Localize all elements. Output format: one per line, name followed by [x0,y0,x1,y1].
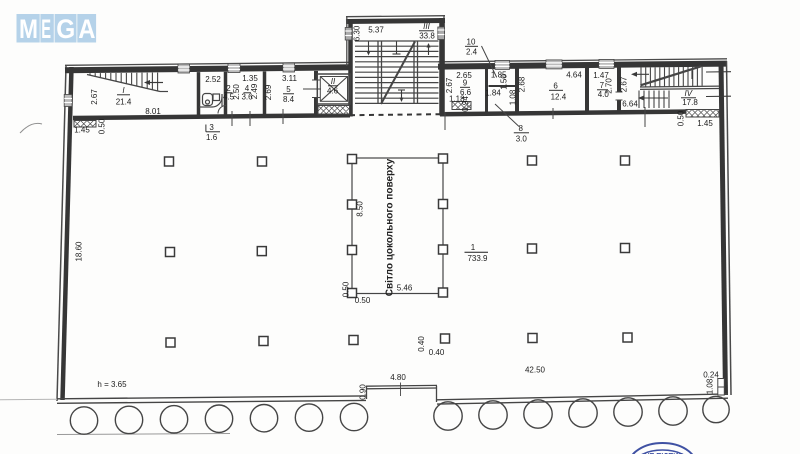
svg-text:2.68: 2.68 [518,76,527,92]
svg-text:II: II [331,77,336,86]
svg-text:1.45: 1.45 [697,119,713,128]
svg-text:5.37: 5.37 [368,26,384,35]
svg-text:0.50: 0.50 [342,281,351,297]
svg-text:6: 6 [553,82,558,91]
svg-text:3: 3 [209,123,214,132]
svg-text:2.69: 2.69 [264,84,273,100]
svg-text:5: 5 [286,85,291,94]
svg-text:3.11: 3.11 [282,74,298,83]
svg-text:3.0: 3.0 [516,135,528,144]
svg-text:0.94: 0.94 [461,96,470,112]
svg-text:9: 9 [463,79,468,88]
svg-text:Світло цокольного поверху: Світло цокольного поверху [385,158,396,296]
svg-text:G: G [56,14,75,44]
svg-text:18.60: 18.60 [75,241,84,262]
svg-text:IV: IV [685,89,693,98]
svg-text:0.40: 0.40 [429,348,445,357]
svg-text:0.90: 0.90 [359,384,368,400]
svg-text:1.08: 1.08 [509,89,518,105]
svg-text:4.80: 4.80 [390,373,406,382]
svg-text:8.4: 8.4 [283,95,295,104]
svg-text:10: 10 [467,38,476,47]
svg-text:h = 3.65: h = 3.65 [97,380,127,389]
svg-text:2.67: 2.67 [90,89,99,105]
svg-text:17.8: 17.8 [682,98,698,107]
svg-text:12.4: 12.4 [551,93,567,102]
svg-text:0.50: 0.50 [355,296,371,305]
svg-text:4.64: 4.64 [566,71,582,80]
svg-text:0.40: 0.40 [417,336,426,352]
svg-text:M: M [19,14,38,44]
svg-text:0.50: 0.50 [98,118,107,134]
svg-text:1.6: 1.6 [206,133,218,142]
svg-text:2.67: 2.67 [620,76,629,92]
svg-text:2.49: 2.49 [250,83,259,99]
svg-text:1: 1 [471,243,476,252]
svg-text:0.50: 0.50 [677,110,686,126]
svg-text:1.08: 1.08 [706,378,715,394]
svg-text:42.50: 42.50 [525,366,546,375]
svg-text:2: 2 [226,84,231,93]
svg-text:6.30: 6.30 [353,25,362,41]
svg-text:1.35: 1.35 [242,74,258,83]
svg-text:33.8: 33.8 [419,32,435,41]
svg-text:0.24: 0.24 [703,371,719,380]
svg-text:4.6: 4.6 [327,87,339,96]
svg-text:6.64: 6.64 [622,100,638,109]
svg-text:8: 8 [518,124,523,133]
svg-text:2.52: 2.52 [205,75,221,84]
svg-text:2.67: 2.67 [445,77,454,93]
svg-text:8.50: 8.50 [356,201,365,217]
svg-text:2.4: 2.4 [466,48,478,57]
svg-text:1.45: 1.45 [74,126,90,135]
svg-text:5.46: 5.46 [397,284,413,293]
svg-text:733.9: 733.9 [467,254,488,263]
svg-text:III: III [423,22,430,31]
svg-text:2.70: 2.70 [605,78,614,94]
svg-text:1.84: 1.84 [485,89,501,98]
svg-text:E: E [41,14,51,44]
svg-text:21.4: 21.4 [116,98,132,107]
svg-text:A: A [78,14,95,44]
svg-text:2.50: 2.50 [232,84,241,100]
svg-text:1.50: 1.50 [500,74,509,90]
svg-text:8.01: 8.01 [145,107,161,116]
